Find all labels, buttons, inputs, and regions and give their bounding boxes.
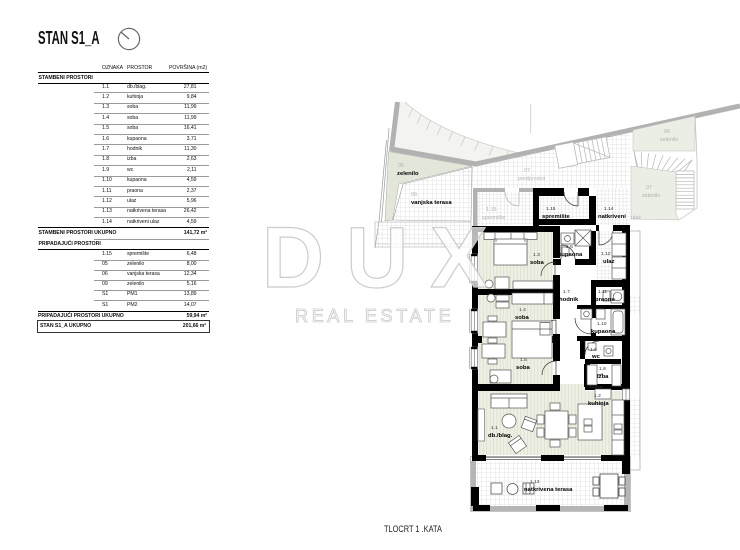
svg-text:1.5: 1.5: [520, 357, 527, 363]
svg-text:zelenilo: zelenilo: [397, 171, 419, 177]
svg-text:1.1: 1.1: [491, 425, 498, 431]
svg-text:1.11: 1.11: [598, 289, 607, 295]
svg-text:1.9: 1.9: [590, 347, 597, 353]
svg-text:1.2: 1.2: [594, 393, 601, 399]
svg-text:praona: praona: [595, 297, 615, 303]
svg-text:db./blag.: db./blag.: [488, 433, 513, 439]
svg-text:1.10: 1.10: [597, 321, 607, 327]
svg-text:kuhinja: kuhinja: [588, 401, 609, 407]
svg-text:wc: wc: [591, 354, 601, 360]
svg-text:soba: soba: [516, 365, 530, 371]
svg-text:1.4: 1.4: [519, 307, 526, 313]
svg-text:1.3: 1.3: [533, 252, 540, 258]
svg-text:vanjska terasa: vanjska terasa: [411, 200, 452, 206]
svg-text:natkriveni: natkriveni: [598, 214, 626, 220]
svg-text:kupaona: kupaona: [558, 252, 583, 258]
svg-text:natkrivena terasa: natkrivena terasa: [524, 487, 573, 493]
svg-text:predprostor: predprostor: [518, 176, 546, 182]
svg-text:07: 07: [524, 168, 530, 174]
svg-text:06: 06: [664, 129, 670, 135]
svg-text:soba: soba: [530, 260, 544, 266]
svg-text:soba: soba: [515, 315, 529, 321]
svg-text:izba: izba: [597, 374, 609, 380]
svg-text:zelenilo: zelenilo: [642, 193, 660, 199]
svg-text:05: 05: [398, 163, 404, 169]
svg-text:ulaz: ulaz: [603, 259, 615, 265]
svg-text:REAL ESTATE: REAL ESTATE: [295, 306, 454, 326]
svg-text:06: 06: [411, 192, 417, 198]
svg-text:1.12: 1.12: [601, 251, 611, 257]
svg-text:07: 07: [646, 185, 652, 191]
svg-text:1.13: 1.13: [530, 479, 540, 485]
svg-text:spremište: spremište: [542, 214, 571, 220]
svg-text:ulaz: ulaz: [631, 215, 641, 221]
svg-text:1.15: 1.15: [546, 206, 556, 212]
svg-text:kupaona: kupaona: [591, 329, 616, 335]
svg-text:zelenilo: zelenilo: [660, 137, 678, 143]
svg-text:DUX: DUX: [262, 210, 510, 306]
svg-text:hodnik: hodnik: [559, 297, 579, 303]
svg-text:1.14: 1.14: [604, 206, 614, 212]
svg-text:1.6: 1.6: [566, 244, 573, 250]
svg-text:1.8: 1.8: [599, 366, 606, 372]
svg-text:1.7: 1.7: [563, 289, 570, 295]
